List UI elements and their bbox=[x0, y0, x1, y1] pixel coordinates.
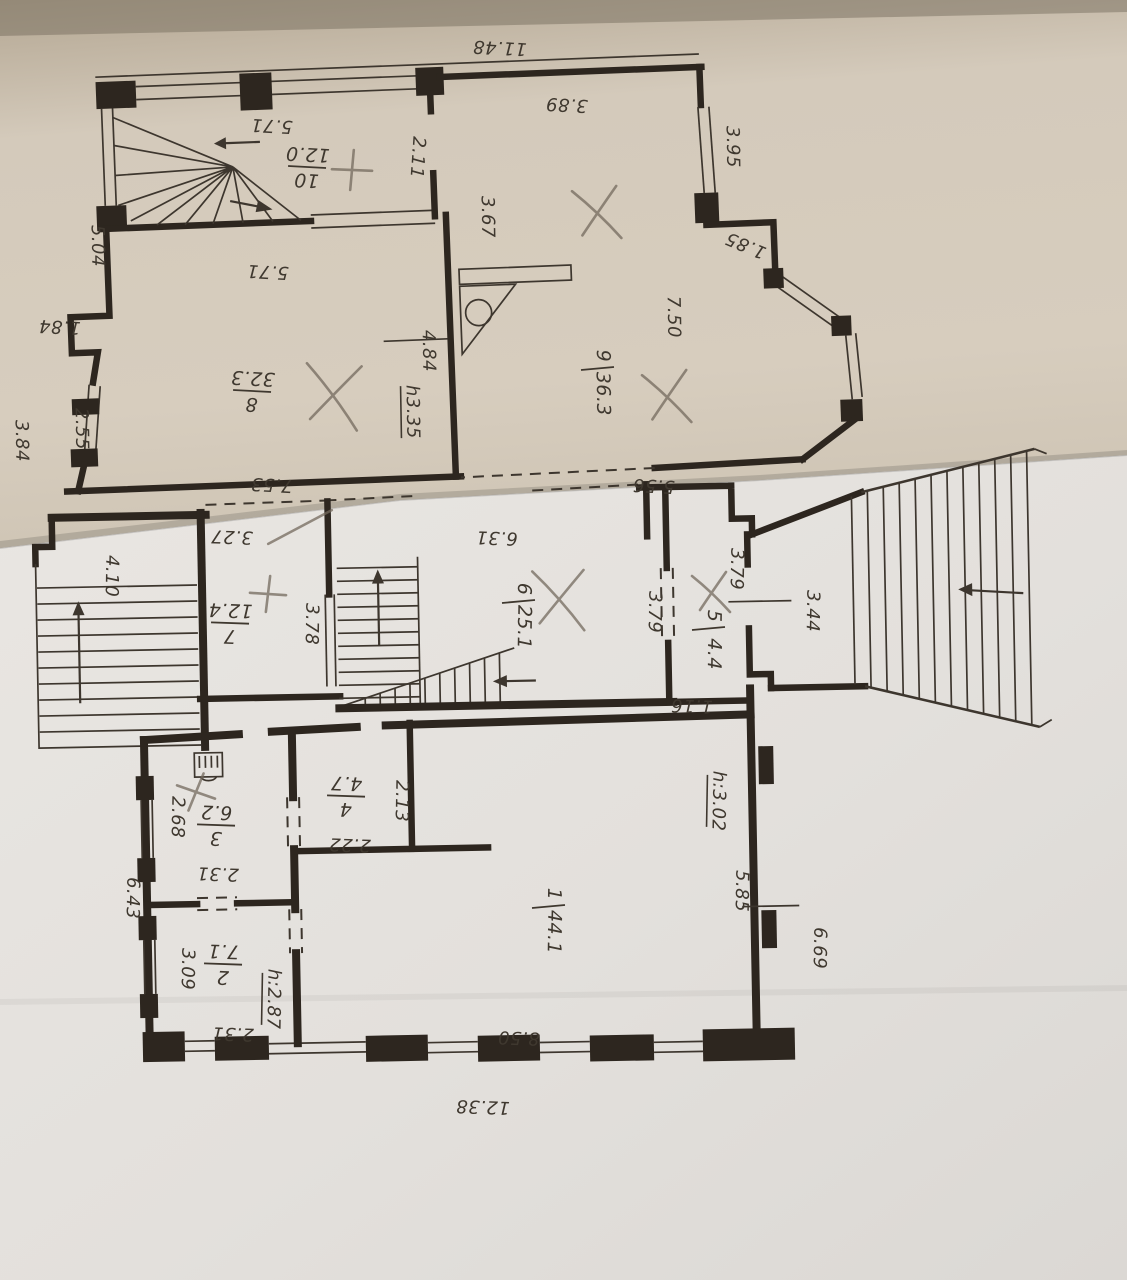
dimension-label: 3.79 bbox=[726, 548, 748, 590]
dimension-label: 3.09 bbox=[177, 948, 199, 990]
svg-text:2: 2 bbox=[216, 966, 229, 988]
svg-text:1.84: 1.84 bbox=[38, 315, 81, 338]
svg-text:6.2: 6.2 bbox=[200, 800, 232, 823]
dimension-label: 2.31 bbox=[196, 862, 239, 884]
svg-text:5: 5 bbox=[703, 610, 725, 623]
dimension-label: 6.31 bbox=[475, 526, 518, 548]
svg-text:7.53: 7.53 bbox=[250, 473, 293, 496]
svg-text:2.22: 2.22 bbox=[328, 833, 371, 855]
svg-text:6.31: 6.31 bbox=[475, 526, 518, 548]
wall-pier bbox=[96, 81, 137, 110]
dimension-label: 3.67 bbox=[477, 196, 499, 238]
svg-text:3.67: 3.67 bbox=[477, 196, 499, 238]
svg-text:5.71: 5.71 bbox=[246, 260, 289, 283]
svg-text:2.55: 2.55 bbox=[71, 408, 93, 450]
svg-text:4: 4 bbox=[339, 798, 352, 820]
svg-text:10: 10 bbox=[293, 168, 319, 191]
svg-text:1: 1 bbox=[543, 888, 565, 901]
ground-floor-sheet bbox=[0, 455, 1127, 1280]
dimension-label: 1.84 bbox=[38, 315, 81, 338]
dimension-label: 3.79 bbox=[644, 591, 666, 633]
svg-text:2.13: 2.13 bbox=[391, 780, 413, 822]
dimension-label: 3.78 bbox=[301, 603, 323, 645]
svg-text:3.27: 3.27 bbox=[210, 525, 253, 547]
dimension-label: 8.50 bbox=[497, 1026, 540, 1048]
svg-text:h:2.87: h:2.87 bbox=[262, 969, 284, 1030]
svg-text:3.95: 3.95 bbox=[722, 126, 744, 168]
svg-text:4.10: 4.10 bbox=[101, 555, 123, 597]
dimension-label: 5.56 bbox=[632, 474, 675, 497]
dimension-label: h3.35 bbox=[401, 385, 424, 439]
svg-text:h:3.02: h:3.02 bbox=[707, 771, 729, 832]
svg-text:32.3: 32.3 bbox=[230, 366, 275, 390]
dimension-label: 2.13 bbox=[391, 780, 413, 822]
svg-text:4.4: 4.4 bbox=[703, 638, 726, 670]
dimension-label: 3.27 bbox=[210, 525, 253, 547]
svg-text:6: 6 bbox=[513, 583, 535, 596]
dimension-label: 7.53 bbox=[250, 473, 293, 496]
dimension-label: 3.89 bbox=[545, 93, 588, 116]
svg-text:7.1: 7.1 bbox=[207, 939, 239, 962]
svg-text:7: 7 bbox=[223, 625, 236, 647]
dimension-label: 5.04 bbox=[87, 225, 109, 267]
svg-text:11.48: 11.48 bbox=[472, 36, 527, 60]
dimension-label: 1.16 bbox=[670, 694, 713, 716]
svg-text:3.79: 3.79 bbox=[726, 548, 748, 590]
svg-text:4.84: 4.84 bbox=[418, 330, 440, 372]
svg-text:12.0: 12.0 bbox=[285, 142, 330, 166]
svg-text:36.3: 36.3 bbox=[592, 372, 615, 417]
svg-text:3.09: 3.09 bbox=[177, 948, 199, 990]
dimension-label: 4.84 bbox=[418, 330, 440, 372]
dimension-label: 6.43 bbox=[122, 877, 144, 919]
dimension-label: 5.85 bbox=[731, 870, 753, 912]
dimension-label: h:2.87 bbox=[261, 969, 284, 1030]
svg-text:4.7: 4.7 bbox=[330, 771, 362, 794]
dimension-tick bbox=[728, 601, 791, 602]
dimension-label: 4.10 bbox=[101, 555, 123, 597]
svg-text:3.78: 3.78 bbox=[301, 603, 323, 645]
dimension-label: 3.95 bbox=[722, 126, 744, 168]
svg-text:3.84: 3.84 bbox=[11, 420, 33, 462]
svg-text:2.68: 2.68 bbox=[167, 796, 189, 838]
svg-text:44.1: 44.1 bbox=[543, 910, 566, 955]
dimension-label: 3.44 bbox=[802, 590, 824, 632]
dimension-label: 12.38 bbox=[455, 1095, 510, 1118]
svg-text:2.11: 2.11 bbox=[406, 136, 430, 179]
dimension-label: h:3.02 bbox=[706, 771, 729, 832]
dimension-label: 2.11 bbox=[406, 136, 430, 179]
svg-text:3.79: 3.79 bbox=[644, 591, 666, 633]
svg-text:7.50: 7.50 bbox=[663, 296, 685, 338]
svg-text:1.16: 1.16 bbox=[670, 694, 713, 716]
svg-text:h3.35: h3.35 bbox=[402, 385, 424, 439]
svg-text:3: 3 bbox=[209, 827, 222, 849]
svg-text:8: 8 bbox=[245, 393, 259, 416]
svg-text:3.44: 3.44 bbox=[802, 590, 824, 632]
dimension-label: 2.22 bbox=[328, 833, 371, 855]
svg-text:2.31: 2.31 bbox=[211, 1022, 254, 1044]
svg-text:9: 9 bbox=[592, 349, 614, 362]
svg-text:6.69: 6.69 bbox=[809, 927, 831, 969]
dimension-label: 3.84 bbox=[11, 420, 33, 462]
svg-text:5.71: 5.71 bbox=[250, 114, 293, 137]
svg-text:12.38: 12.38 bbox=[455, 1095, 510, 1118]
svg-text:12.4: 12.4 bbox=[208, 598, 253, 622]
svg-text:25.1: 25.1 bbox=[513, 605, 536, 650]
dimension-label: 5.71 bbox=[246, 260, 289, 283]
svg-text:5.85: 5.85 bbox=[731, 870, 753, 912]
floor-plan-svg: 11.485.715.712.113.893.951.857.503.675.0… bbox=[0, 0, 1127, 1280]
svg-text:6.43: 6.43 bbox=[122, 877, 144, 919]
dimension-label: 7.50 bbox=[663, 296, 685, 338]
svg-text:2.31: 2.31 bbox=[196, 862, 239, 884]
dimension-label: 11.48 bbox=[472, 36, 527, 60]
svg-text:3.89: 3.89 bbox=[545, 93, 588, 116]
dimension-label: 2.68 bbox=[167, 796, 189, 838]
dimension-label: 2.55 bbox=[71, 408, 93, 450]
svg-text:5.56: 5.56 bbox=[632, 474, 675, 497]
dimension-label: 5.71 bbox=[250, 114, 293, 137]
dimension-label: 2.31 bbox=[211, 1022, 254, 1044]
svg-text:8.50: 8.50 bbox=[497, 1026, 540, 1048]
dimension-label: 6.69 bbox=[809, 927, 831, 969]
floor-plan-scan: 11.485.715.712.113.893.951.857.503.675.0… bbox=[0, 0, 1127, 1280]
svg-text:5.04: 5.04 bbox=[87, 225, 109, 267]
